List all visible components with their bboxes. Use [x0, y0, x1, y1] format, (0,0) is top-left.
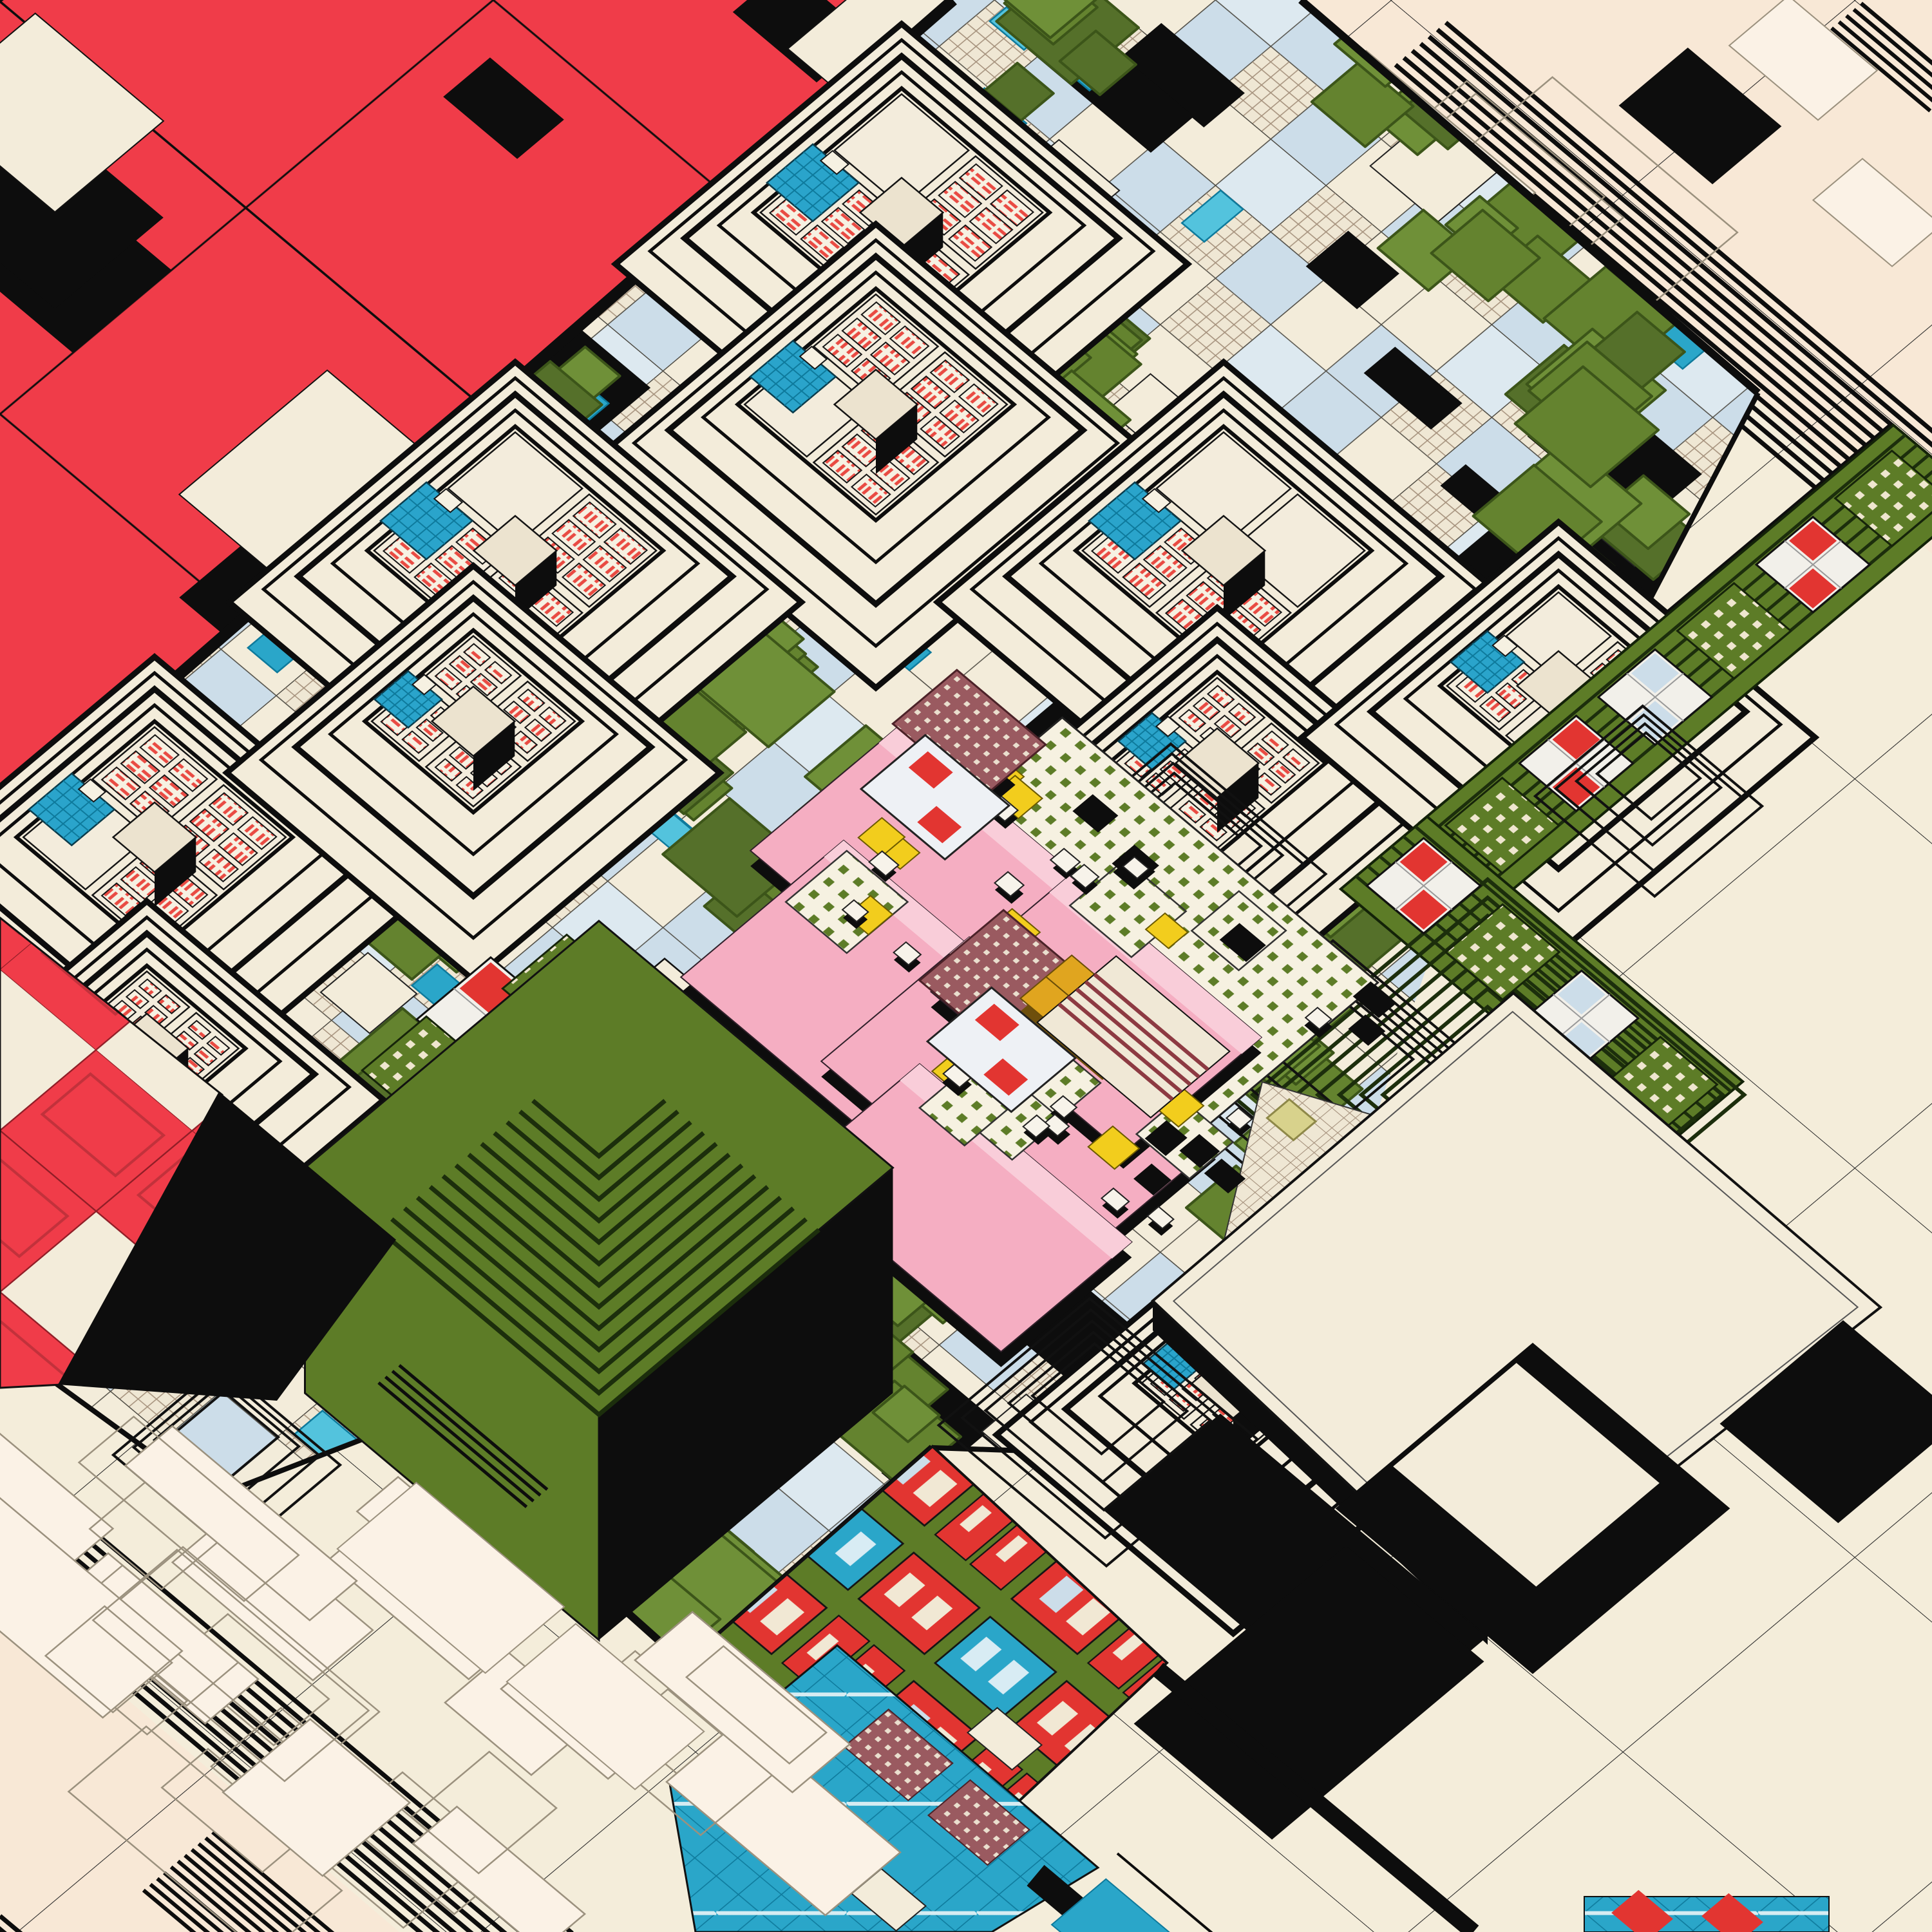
- artwork-frame: [0, 0, 1932, 1932]
- isometric-city-artwork: [0, 0, 1932, 1932]
